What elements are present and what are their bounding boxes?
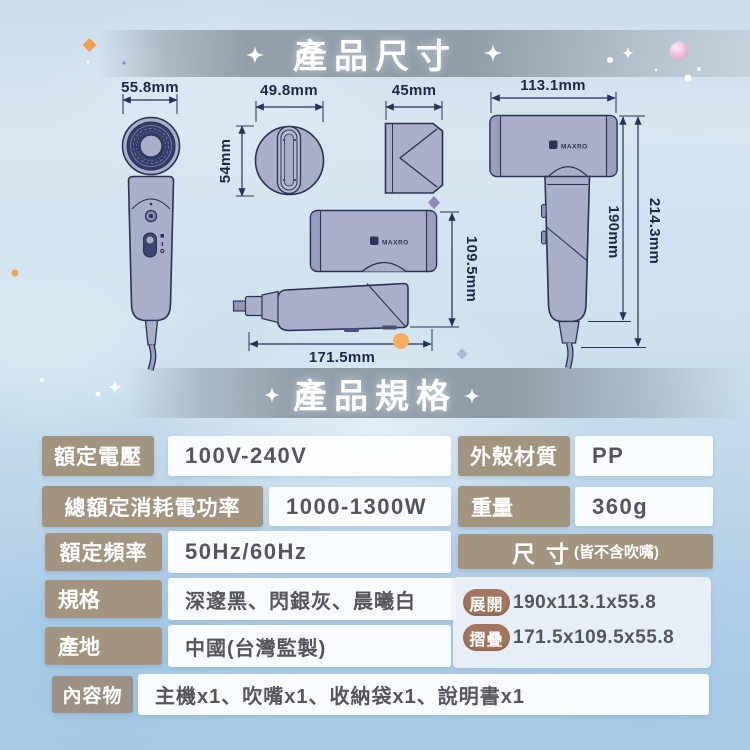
spec-value-contents: 主機x1、吹嘴x1、收納袋x1、說明書x1 <box>138 674 709 715</box>
size-values-box: 展開 190x113.1x55.8 摺疊 171.5x109.5x55.8 <box>453 577 711 668</box>
spec-label-material: 外殼材質 <box>458 436 570 476</box>
spec-label-origin: 產地 <box>45 627 162 665</box>
spec-label-weight: 重量 <box>458 486 570 527</box>
size-label: 尺寸 <box>512 535 580 569</box>
unfolded-dimensions: 190x113.1x55.8 <box>513 592 656 614</box>
spec-value-power: 1000-1300W <box>269 487 451 526</box>
spec-label-voltage: 額定電壓 <box>42 436 154 476</box>
spec-label-power: 總額定消耗電功率 <box>42 486 263 527</box>
spec-value-colorways: 深邃黑、閃銀灰、晨曦白 <box>168 578 456 620</box>
spec-value-voltage: 100V-240V <box>168 436 451 476</box>
spec-value-material: PP <box>575 436 713 476</box>
spec-table: 額定電壓 100V-240V 總額定消耗電功率 1000-1300W 額定頻率 … <box>0 0 750 750</box>
spec-label-colorways: 規格 <box>45 580 162 618</box>
spec-value-weight: 360g <box>575 487 713 526</box>
folded-badge: 摺疊 <box>463 624 510 651</box>
size-row-folded: 摺疊 171.5x109.5x55.8 <box>463 624 674 651</box>
spec-value-frequency: 50Hz/60Hz <box>168 531 451 573</box>
product-spec-infographic: 產品尺寸 產品規格 額定電壓 100V-240V 總額定消耗電功率 1000-1… <box>0 0 750 750</box>
size-note: (皆不含吹嘴) <box>574 541 659 562</box>
folded-dimensions: 171.5x109.5x55.8 <box>513 627 674 649</box>
spec-label-frequency: 額定頻率 <box>45 533 162 571</box>
spec-value-origin: 中國(台灣監製) <box>168 625 451 667</box>
unfolded-badge: 展開 <box>463 589 510 616</box>
size-row-unfolded: 展開 190x113.1x55.8 <box>463 589 656 616</box>
spec-label-size: 尺寸 (皆不含吹嘴) <box>458 534 713 569</box>
spec-label-contents: 內容物 <box>52 676 133 713</box>
